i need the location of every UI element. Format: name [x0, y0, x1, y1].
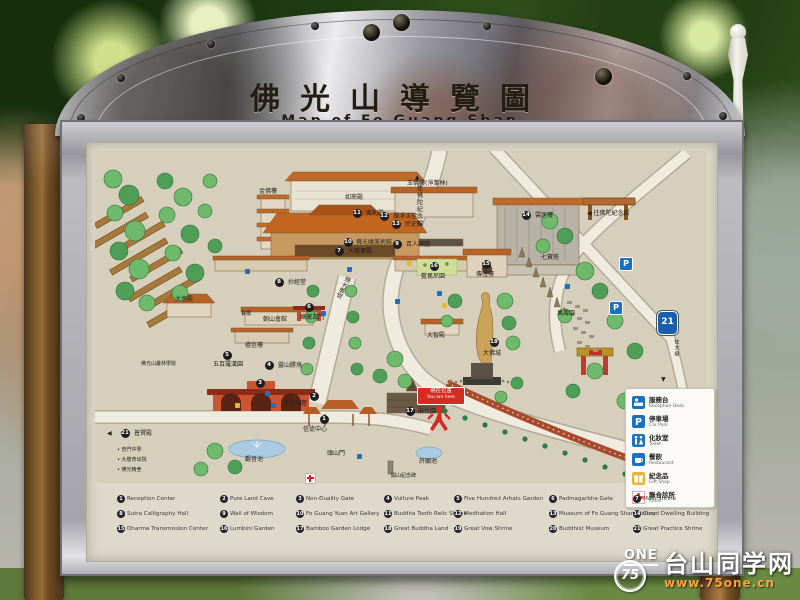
map-text-label: 開山紀念碑 — [391, 473, 416, 480]
map-marker-14: 14 — [522, 211, 531, 220]
legend-item: 21Great Practice Shrine — [633, 525, 695, 533]
facility-row: 紀念品Gift Shop — [632, 469, 714, 488]
legend-item: 9Wall of Wisdom — [220, 510, 296, 518]
map-marker-label: 佛光緣美術館 — [356, 240, 392, 246]
map-marker-2: 2 — [310, 392, 319, 401]
legend-number-dot: 14 — [633, 510, 641, 518]
rivet — [311, 22, 319, 30]
watermark-logo-75: 75 — [614, 560, 646, 592]
legend-item: 20Buddhist Museum — [549, 525, 633, 533]
legend-number-dot: 13 — [549, 510, 557, 518]
facility-label-zh: 餐飲 — [649, 454, 674, 461]
legend-item-label: Main Shrine — [643, 496, 676, 502]
facility-label-en: Restaurant — [649, 461, 674, 466]
rivet — [483, 22, 491, 30]
map-marker-6: 6 — [305, 303, 314, 312]
facility-row: 化妝室Toilet — [632, 431, 714, 450]
map-text-label: • 佛光精舍 — [117, 467, 142, 474]
map-text-label: 大智殿 — [427, 333, 445, 340]
map-text-label: 佛光山叢林學院 — [141, 361, 176, 368]
legend-number-dot: 18 — [384, 525, 392, 533]
map-marker-5: 5 — [223, 351, 232, 360]
map-board-mat: 現在位置 You are here 21 P P 1信徒中心2淨土洞窟34靈山勝… — [86, 142, 718, 562]
watermark-site-name: 台山同学网 — [664, 551, 794, 577]
legend-item: 13Museum of Fo Guang Shan History — [549, 510, 633, 518]
facility-label-en: Reception Desk — [649, 404, 684, 409]
map-text-label: 檀信樓 — [245, 343, 263, 350]
mini-giftshop-icon — [442, 303, 447, 308]
map-text-label: 玉佛樓(淨業林) — [407, 181, 448, 188]
legend-item: 6Padmagarbha Gate — [549, 495, 633, 503]
legend-item-label: Reception Center — [127, 496, 175, 502]
map-marker-13: 13 — [392, 220, 401, 229]
legend-item-label: Lumbini Garden — [230, 526, 275, 532]
legend-item-label: Vulture Peak — [394, 496, 429, 502]
map-marker-7: 7 — [335, 247, 344, 256]
clinic-cross-icon — [305, 473, 316, 484]
legend-number-dot: 19 — [454, 525, 462, 533]
facility-row: P停車場Car Park — [632, 412, 714, 431]
legend-item: 11Buddha Tooth Relic Shrine — [384, 510, 454, 518]
legend-item-label: Bamboo Garden Lodge — [306, 526, 370, 532]
legend-item-label: Fo Guang Yuan Art Gallery — [306, 511, 380, 517]
legend-item: 12Meditation Hall — [454, 510, 549, 518]
finial-ball — [730, 24, 746, 40]
parking-sign-icon: P — [609, 301, 623, 315]
legend-item-label: Pure Land Cave — [230, 496, 274, 502]
you-are-here-zh: 現在位置 — [418, 388, 464, 395]
legend-item: 17Bamboo Garden Lodge — [296, 525, 384, 533]
facility-labels: 服務台Reception Desk — [649, 397, 684, 409]
mini-facility-icon — [565, 284, 570, 289]
legend-item: 1Reception Center — [117, 495, 220, 503]
you-are-here-sign: 現在位置 You are here — [417, 387, 465, 405]
restaurant-icon — [632, 453, 645, 466]
facility-label-zh: 停車場 — [649, 416, 669, 423]
desk-icon — [632, 396, 645, 409]
legend-number-dot: 20 — [549, 525, 557, 533]
map-text-label: 觀音池 — [245, 457, 263, 464]
legend-item: 19Great Vow Shrine — [454, 525, 549, 533]
map-text-label: 往大樹 — [673, 339, 680, 357]
map-marker-label: 抄經堂 — [288, 280, 306, 286]
rivet — [207, 40, 215, 48]
legend-number-dot: 12 — [454, 510, 462, 518]
mini-facility-icon — [347, 267, 352, 272]
legend-item-label: Wall of Wisdom — [230, 511, 273, 517]
legend-item-label: Buddhist Museum — [559, 526, 609, 532]
legend-item-label: Great Buddha Land — [394, 526, 448, 532]
mini-facility-icon — [321, 311, 326, 316]
facility-label-zh: 紀念品 — [649, 473, 670, 480]
map-marker-17: 17 — [406, 407, 415, 416]
legend-number-dot: 3 — [296, 495, 304, 503]
map-text-label: 許願池 — [419, 459, 437, 466]
legend-number-dot: 1 — [117, 495, 125, 503]
map-marker-label: 五百羅漢園 — [213, 362, 243, 368]
legend-item: 18Great Buddha Land — [384, 525, 454, 533]
map-marker-4: 4 — [265, 361, 274, 370]
legend-number-dot: 4 — [384, 495, 392, 503]
facility-labels: 化妝室Toilet — [649, 435, 669, 447]
map-marker-label: 華藏玄門 — [300, 315, 324, 321]
photo-of-map-sign: 佛光山導覽圖 Map of Fo Guang Shan — [0, 0, 800, 600]
sign-title-chinese: 佛光山導覽圖 — [55, 74, 745, 118]
map-marker-18: 18 — [490, 338, 499, 347]
toilet-icon — [632, 434, 645, 447]
map-drawing-area: 現在位置 You are here 21 P P 1信徒中心2淨土洞窟34靈山勝… — [95, 151, 707, 483]
numbered-legend: 1Reception Center2Pure Land Cave3Non-Dua… — [117, 495, 695, 533]
map-marker-15: 15 — [482, 260, 491, 269]
route-21-shield: 21 — [657, 311, 678, 335]
map-text-label: 寶橋 — [241, 311, 251, 318]
map-marker-label: 藍毘尼園 — [421, 274, 445, 280]
facility-labels: 停車場Car Park — [649, 416, 669, 428]
map-marker-label: 麻竹園 — [418, 409, 436, 415]
map-marker-label: 傳燈樓 — [476, 272, 494, 278]
legend-number-dot: 21 — [633, 525, 641, 533]
map-marker-label: 大佛城 — [483, 351, 501, 357]
mini-facility-icon — [357, 454, 362, 459]
legend-item: 16Lumbini Garden — [220, 525, 296, 533]
facility-row: 餐飲Restaurant — [632, 450, 714, 469]
map-marker-21: 21 — [121, 429, 130, 438]
legend-item: 3Non-Duality Gate — [296, 495, 384, 503]
legend-number-dot: 15 — [117, 525, 125, 533]
map-text-label: 大悲殿 — [175, 297, 193, 304]
map-marker-label: 靈山勝境 — [278, 363, 302, 369]
legend-item-label: Non-Duality Gate — [306, 496, 354, 502]
map-text-label: 朝山會館 — [263, 317, 287, 324]
mini-giftshop-icon — [235, 403, 240, 408]
legend-item-label: Meditation Hall — [464, 511, 506, 517]
map-marker-10: 10 — [344, 238, 353, 247]
legend-item-label: Great Practice Shrine — [643, 526, 702, 532]
map-marker-label: 普賢殿 — [134, 431, 152, 437]
map-marker-8: 8 — [275, 278, 284, 287]
legend-number-dot: 16 — [220, 525, 228, 533]
map-marker-label: 雲居樓 — [535, 213, 553, 219]
facility-labels: 餐飲Restaurant — [649, 454, 674, 466]
map-text-label: • 大慈育幼院 — [117, 457, 147, 464]
watermark-logo: ONE 75 — [612, 548, 658, 592]
map-marker-9: 9 — [393, 240, 402, 249]
legend-number-dot: 10 — [296, 510, 304, 518]
legend-item-label: Dharma Transmission Center — [127, 526, 208, 532]
map-marker-label: 百人碑牆 — [406, 242, 430, 248]
map-marker-1: 1 — [320, 415, 329, 424]
legend-item: 15Dharma Transmission Center — [117, 525, 220, 533]
map-marker-16: 16 — [430, 262, 439, 271]
you-are-here-en: You are here — [418, 395, 464, 400]
mini-facility-icon — [437, 291, 442, 296]
facility-label-zh: 服務台 — [649, 397, 684, 404]
legend-item: 8Sutra Calligraphy Hall — [117, 510, 220, 518]
map-marker-label: 大雄寶殿 — [348, 249, 372, 255]
gift-icon — [632, 472, 645, 485]
map-labels-overlay: 現在位置 You are here 21 P P 1信徒中心2淨土洞窟34靈山勝… — [95, 151, 707, 483]
map-text-label: ◀ — [107, 431, 112, 438]
legend-item-label: Padmagarbha Gate — [559, 496, 613, 502]
watermark: ONE 75 台山同学网 www.75one.cn — [612, 548, 794, 592]
legend-number-dot: 11 — [384, 510, 392, 518]
rivet-large — [363, 24, 380, 41]
facility-labels: 紀念品Gift Shop — [649, 473, 670, 485]
map-text-label: 萬壽園 — [557, 311, 575, 318]
map-text-label: 往佛陀紀念館 — [415, 185, 422, 227]
legend-number-dot: 5 — [454, 495, 462, 503]
map-marker-label: 信徒中心 — [303, 427, 327, 433]
facility-label-en: Gift Shop — [649, 480, 670, 485]
parking-sign-icon: P — [619, 257, 633, 271]
mini-facility-icon — [395, 299, 400, 304]
legend-item: 2Pure Land Cave — [220, 495, 296, 503]
map-marker-11: 11 — [353, 209, 362, 218]
legend-number-dot: 8 — [117, 510, 125, 518]
facility-label-zh: 化妝室 — [649, 435, 669, 442]
legend-item: 5Five Hundred Arhats Garden — [454, 495, 549, 503]
legend-item: 4Vulture Peak — [384, 495, 454, 503]
legend-item: 10Fo Guang Yuan Art Gallery — [296, 510, 384, 518]
legend-item-label: Sutra Calligraphy Hall — [127, 511, 188, 517]
map-text-label: 七寶塔 — [541, 255, 559, 262]
mini-giftshop-icon — [407, 261, 412, 266]
map-text-label: 如來殿 — [345, 195, 363, 202]
map-text-label: 成佛大道 — [337, 276, 354, 300]
map-marker-3: 3 — [256, 379, 265, 388]
watermark-text: 台山同学网 www.75one.cn — [664, 551, 794, 590]
map-marker-12: 12 — [380, 212, 389, 221]
svg-text:P: P — [635, 417, 642, 428]
map-text-label: ◀ 往佛陀紀念館 — [587, 211, 630, 218]
mini-facility-icon — [271, 403, 276, 408]
mini-facility-icon — [245, 269, 250, 274]
map-text-label: 金佛樓 — [259, 189, 277, 196]
legend-item: 7Main Shrine — [633, 495, 695, 503]
facility-label-en: Toilet — [649, 442, 669, 447]
watermark-site-url: www.75one.cn — [664, 577, 794, 590]
map-text-label: • 普門中學 — [117, 447, 142, 454]
map-marker-label: 淨土洞窟 — [283, 401, 307, 407]
map-board-frame: 現在位置 You are here 21 P P 1信徒中心2淨土洞窟34靈山勝… — [60, 120, 744, 576]
facility-legend-card: 服務台Reception DeskP停車場Car Park化妝室Toilet餐飲… — [625, 388, 715, 508]
rivet-large — [393, 14, 410, 31]
facility-legend-list: 服務台Reception DeskP停車場Car Park化妝室Toilet餐飲… — [632, 393, 714, 507]
wooden-post-left — [24, 124, 64, 600]
facility-row: 服務台Reception Desk — [632, 393, 714, 412]
parking-icon: P — [632, 415, 645, 428]
legend-number-dot: 9 — [220, 510, 228, 518]
map-text-label: ▲ — [415, 175, 420, 182]
facility-label-en: Car Park — [649, 423, 669, 428]
legend-number-dot: 17 — [296, 525, 304, 533]
mini-facility-icon — [265, 391, 270, 396]
legend-number-dot: 7 — [633, 495, 641, 503]
map-text-label: ▼ — [661, 377, 666, 384]
legend-number-dot: 2 — [220, 495, 228, 503]
legend-item-label: Great Vow Shrine — [464, 526, 512, 532]
legend-item-label: Cloud Dwelling Building — [643, 511, 709, 517]
legend-number-dot: 6 — [549, 495, 557, 503]
legend-item-label: Five Hundred Arhats Garden — [464, 496, 543, 502]
legend-item: 14Cloud Dwelling Building — [633, 510, 695, 518]
map-text-label: 頭山門 — [327, 451, 345, 458]
